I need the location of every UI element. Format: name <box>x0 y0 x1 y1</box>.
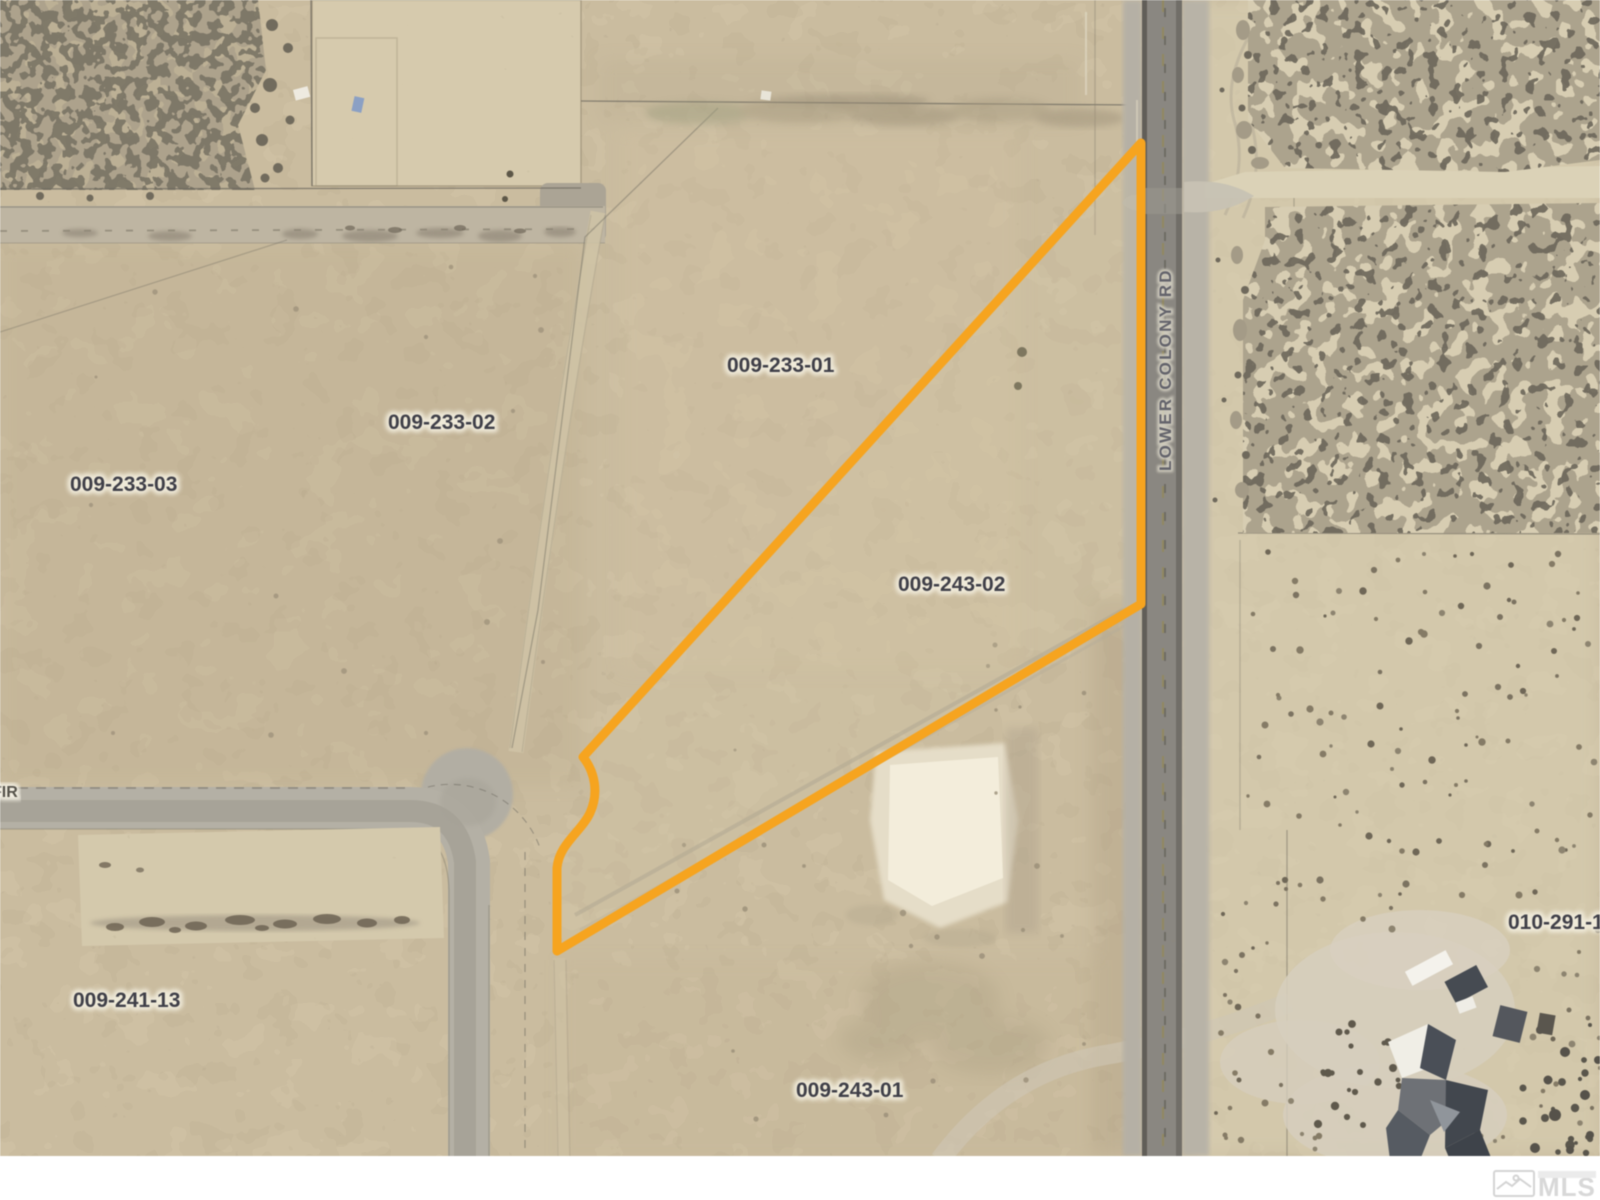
svg-text:009-243-01: 009-243-01 <box>796 1079 904 1102</box>
svg-text:009-241-13: 009-241-13 <box>73 989 180 1012</box>
svg-text:009-233-03: 009-233-03 <box>70 473 177 496</box>
svg-text:009-233-01: 009-233-01 <box>727 354 835 377</box>
svg-text:010-291-11: 010-291-11 <box>1508 911 1600 934</box>
svg-text:009-233-02: 009-233-02 <box>388 411 495 434</box>
svg-text:FIR: FIR <box>0 784 18 801</box>
svg-text:009-243-02: 009-243-02 <box>898 573 1005 596</box>
svg-text:LOWER COLONY RD: LOWER COLONY RD <box>1156 268 1175 471</box>
